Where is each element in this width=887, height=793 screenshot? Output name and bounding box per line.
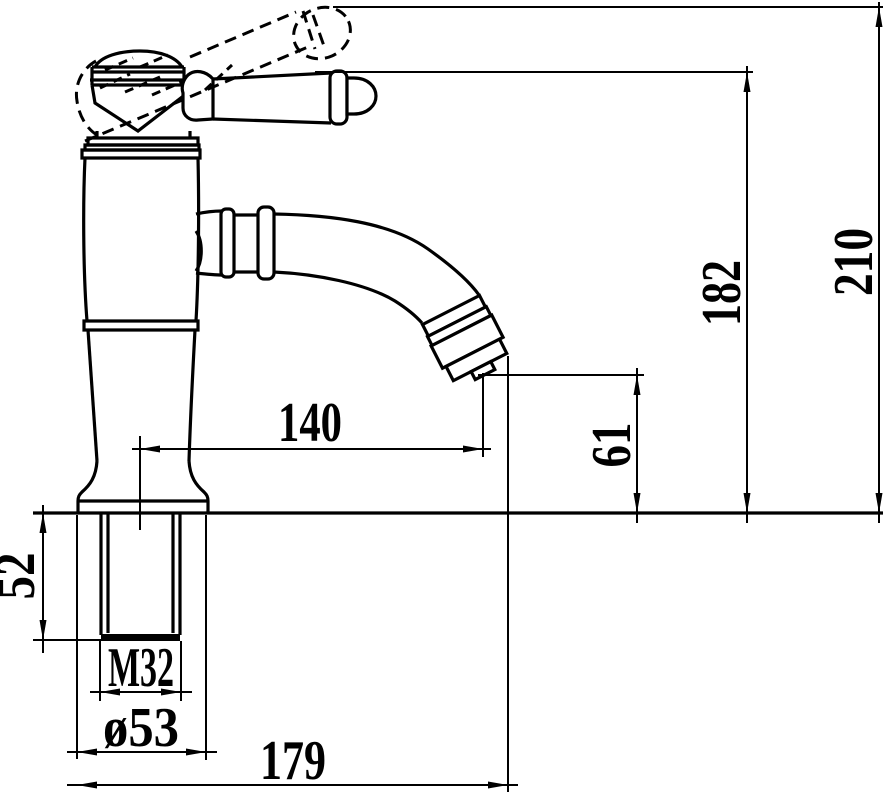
faucet-body [84,158,199,461]
dimension-outlet-height: 61 [581,368,643,523]
dimensions: 210 182 61 140 52 [0,2,885,792]
threaded-shank [101,513,180,641]
dimension-overall-height: 210 [823,2,885,523]
dim-label-182: 182 [691,260,753,326]
spout-ring-1 [221,209,234,277]
base-flare [78,461,208,512]
technical-drawing-sheet: 210 182 61 140 52 [0,0,887,793]
handle-lever [182,71,376,124]
dimension-handle-height: 182 [691,66,753,523]
dimension-spout-reach: 140 [132,392,491,454]
handle-hub [182,72,213,121]
dim-label-179: 179 [260,730,326,792]
faucet-head [90,51,191,138]
dim-label-210: 210 [823,228,885,296]
faucet-dimension-drawing: 210 182 61 140 52 [0,0,887,793]
dimension-shank-depth: 52 [0,505,47,653]
handle-collar [330,71,347,124]
dim-label-d53: ø53 [103,697,179,759]
dimension-thread: M32 [90,637,192,699]
dimension-base-diameter: ø53 [67,697,217,759]
aerator [421,295,515,391]
handle-knob [347,78,376,114]
spout-ring-2 [258,207,274,279]
dim-label-m32: M32 [108,637,174,699]
dim-label-61: 61 [581,423,643,468]
neck-rings [82,138,200,158]
dim-label-140: 140 [278,392,342,454]
faucet-outline [76,0,514,641]
spout [196,207,479,323]
dim-label-52: 52 [0,553,47,600]
